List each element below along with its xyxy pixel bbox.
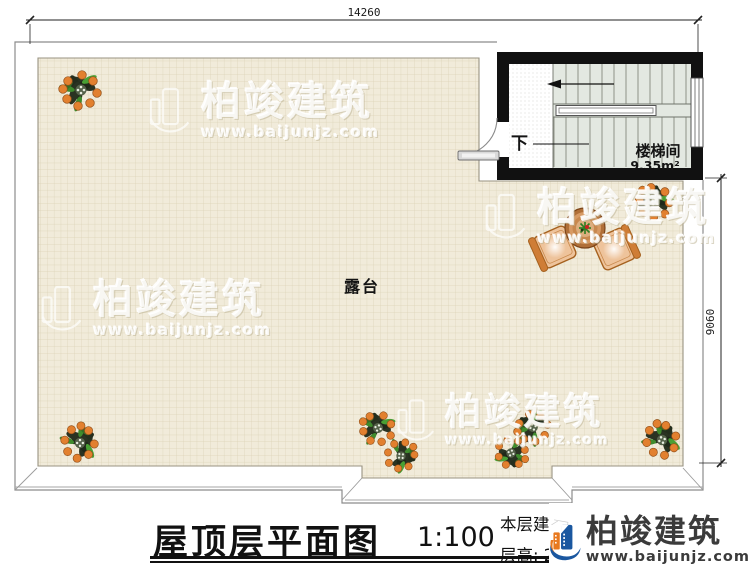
parapet-outer-double-line [15, 487, 703, 500]
floor-plan-drawing: 14260 9060 [0, 0, 750, 510]
dimension-top: 14260 [26, 6, 702, 52]
round-table-icon [565, 208, 605, 248]
logo-icon [549, 506, 582, 574]
company-logo: 柏竣建筑 www.baijunjz.com [549, 503, 750, 577]
stair-handrail [556, 106, 656, 116]
dimension-right-value: 9060 [704, 309, 717, 336]
stair-room-area: 9.35m² [630, 158, 679, 173]
window-icon [691, 78, 703, 147]
stair-room: 下 楼梯间 9.35m² [458, 52, 703, 180]
logo-url-text: www.baijunjz.com [586, 549, 750, 565]
parapet-miter-lines [15, 468, 703, 500]
terrace-label: 露台 [344, 277, 380, 296]
roof-floor-plan-page: 14260 9060 [0, 0, 750, 577]
stair-down-label: 下 [511, 134, 528, 154]
title-block: 屋顶层平面图 1:100 本层建筑面积: 12.62m² 层高: 2.7m [0, 503, 750, 577]
drawing-scale: 1:100 [417, 522, 495, 553]
dimension-top-value: 14260 [347, 6, 380, 19]
logo-brand-text: 柏竣建筑 [586, 515, 750, 549]
